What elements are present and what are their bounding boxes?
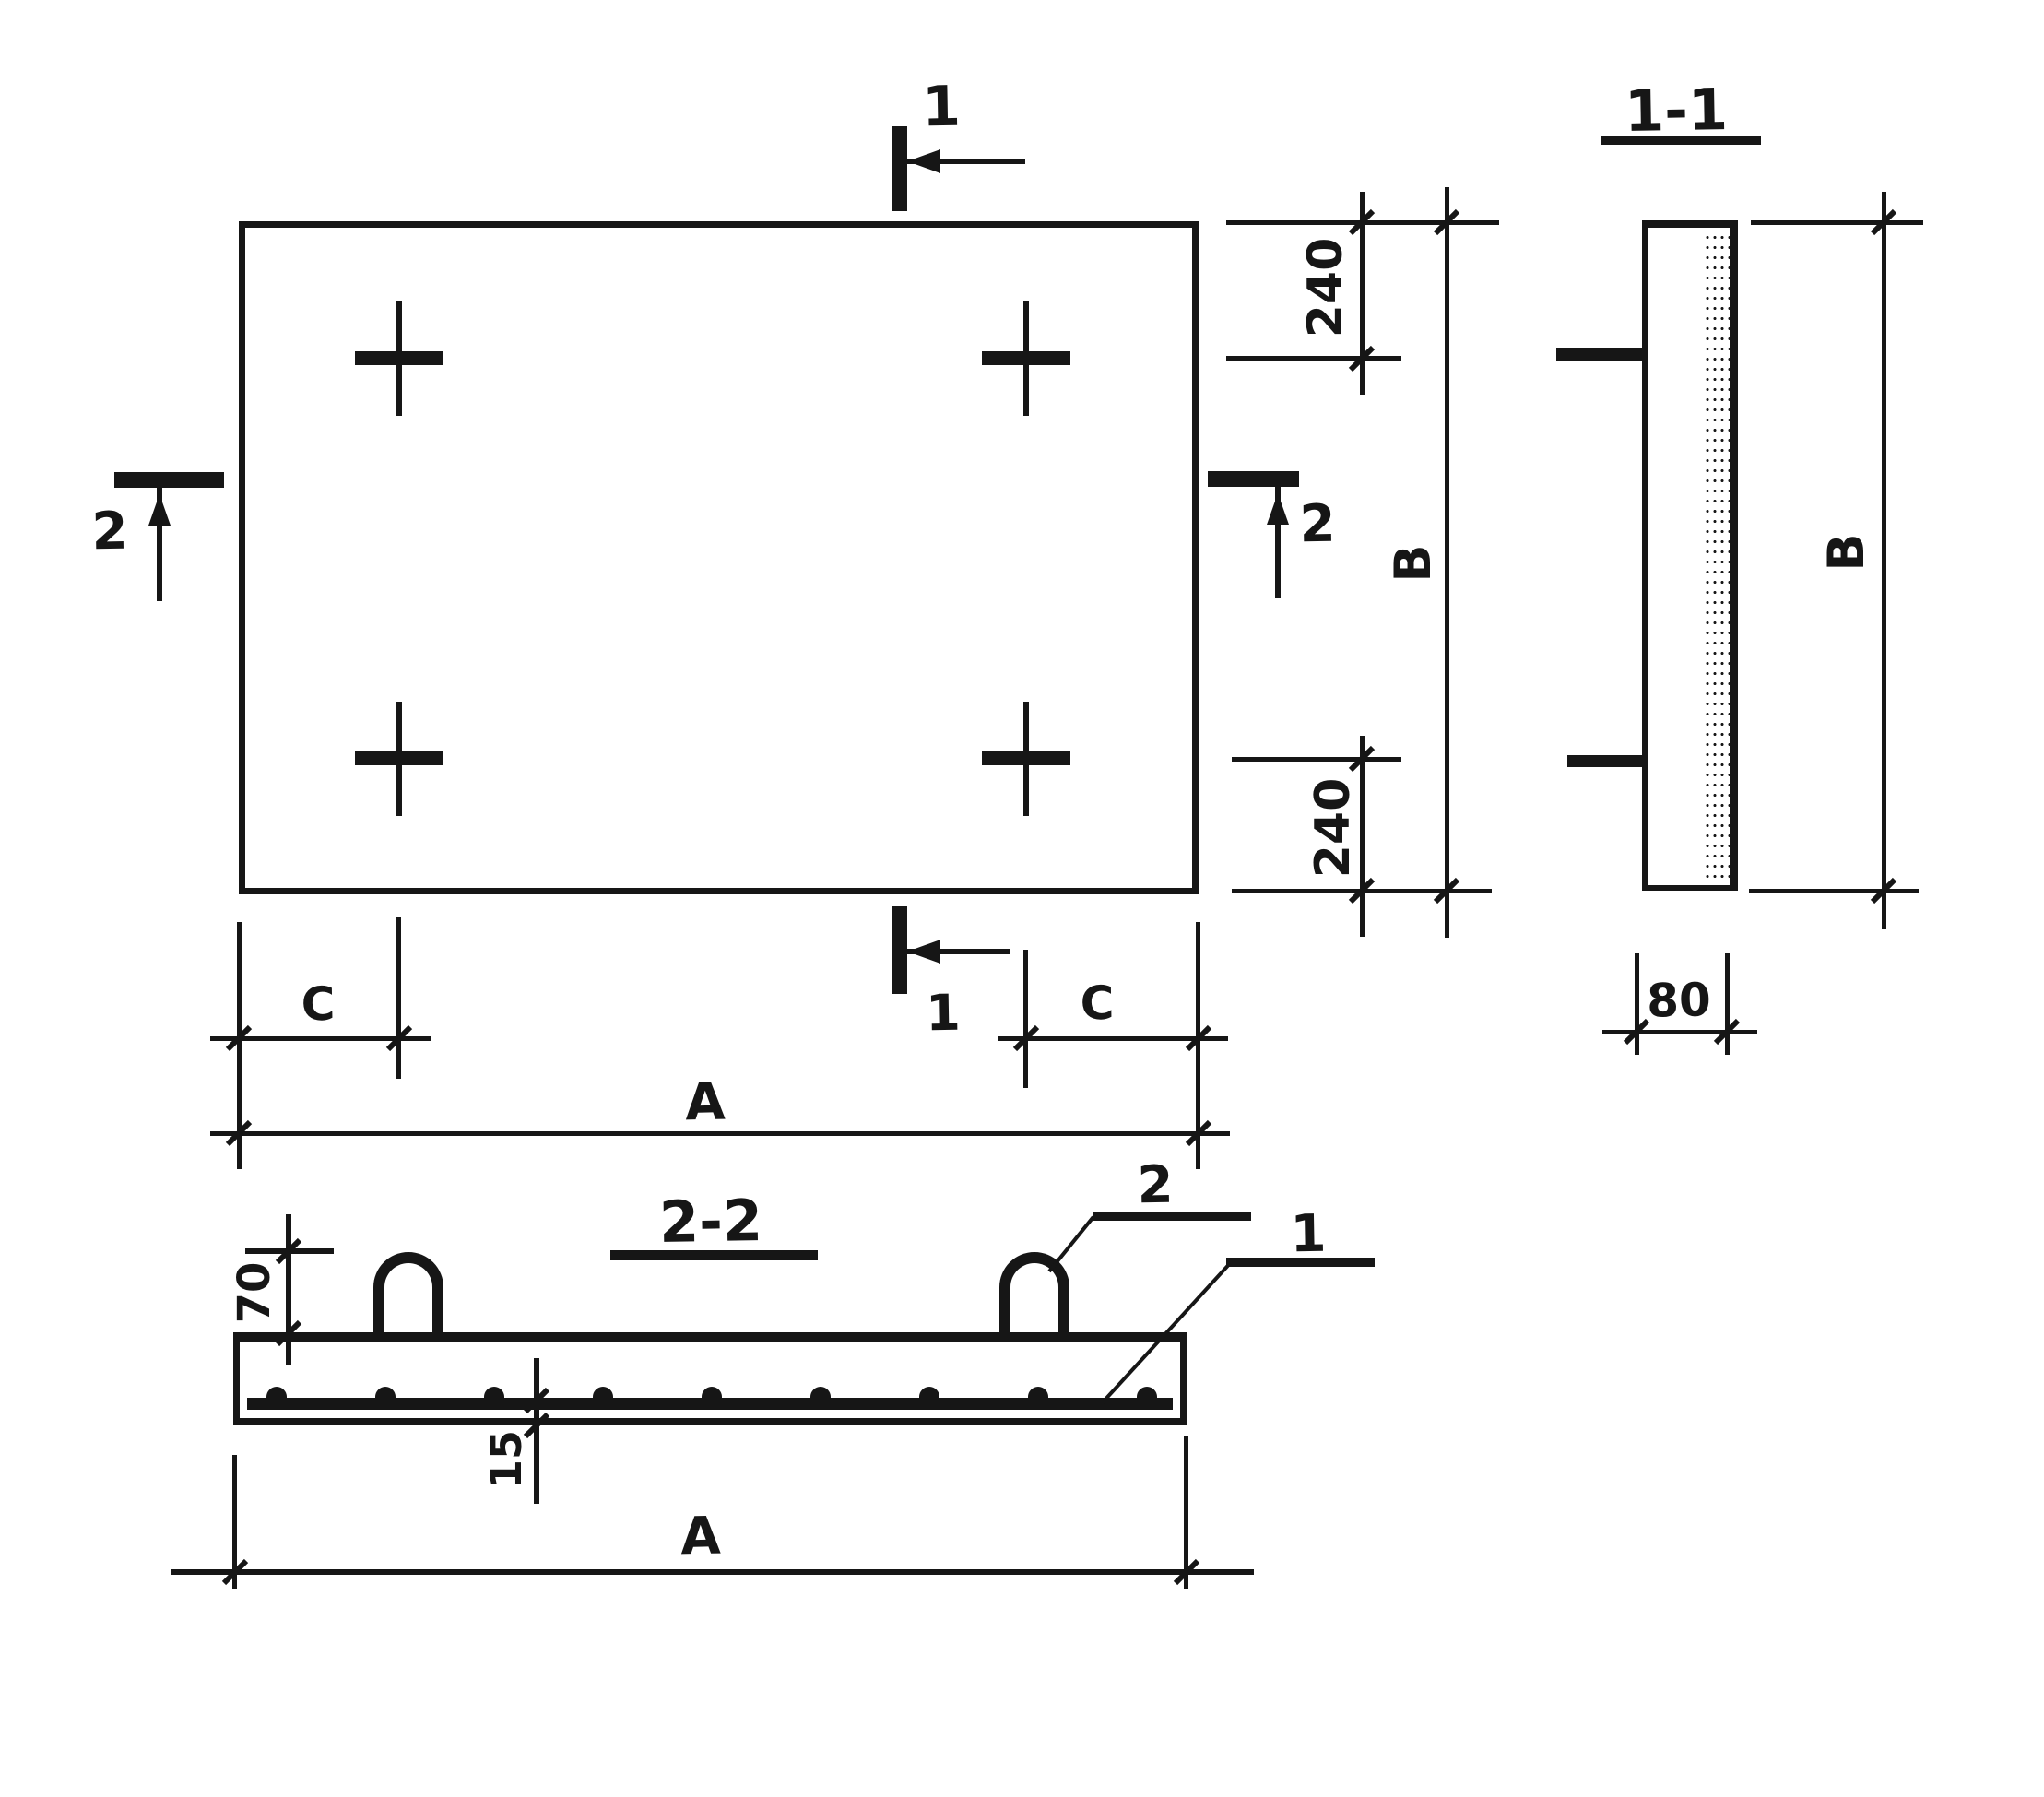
dim-70-label: 70 [232, 1262, 277, 1324]
dim-A-section-label: A [680, 1511, 721, 1564]
section-2-2-title: 2-2 [658, 1192, 762, 1251]
lifting-loop-right [999, 1252, 1069, 1333]
dim-C-left-label: C [301, 981, 336, 1028]
lifting-loop-left [373, 1252, 443, 1333]
section11-loop-tie-bottom [1567, 755, 1644, 767]
extension-line [1751, 220, 1923, 225]
dimension-line-A-plan [210, 1131, 1230, 1136]
extension-line [1749, 889, 1919, 893]
callout-mesh-underline [1226, 1258, 1375, 1267]
dim-240-bottom-label: 240 [1309, 778, 1357, 879]
dim-A-plan-label: A [685, 1077, 726, 1129]
section11-rebar-mesh [1704, 232, 1730, 880]
extension-line [396, 917, 401, 1079]
dimension-line-A-section [171, 1569, 1254, 1575]
cut1-top-arrow-icon [907, 149, 940, 173]
extension-line [1725, 953, 1730, 1055]
dimension-line-70 [286, 1214, 291, 1365]
dim-80-label: 80 [1647, 976, 1711, 1023]
cut1-top-bar [892, 126, 907, 211]
loop-mark-bar [355, 351, 443, 365]
section-1-1-title-underline [1601, 136, 1761, 145]
cut1-top-label: 1 [922, 79, 962, 136]
callout-loop-label: 2 [1137, 1160, 1174, 1212]
dimension-line-B-plan [1445, 187, 1449, 938]
plan-slab-outline [239, 221, 1199, 894]
dim-C-right-label: C [1080, 980, 1115, 1027]
dim-B-plan-label: B [1388, 544, 1438, 582]
section22-slab-outline [233, 1332, 1187, 1425]
cut2-right-label: 2 [1299, 499, 1336, 551]
cut1-bottom-arrow-icon [907, 940, 940, 964]
cut2-left-arrow-icon [148, 494, 171, 526]
callout-loop-underline [1093, 1212, 1251, 1221]
cut1-bottom-label: 1 [926, 988, 962, 1039]
cut2-right-arrow-icon [1267, 493, 1289, 525]
dim-B-section-label: B [1822, 533, 1872, 571]
loop-mark-bar [982, 351, 1070, 365]
dim-240-top-label: 240 [1302, 238, 1350, 338]
loop-mark-bar [355, 751, 443, 765]
loop-mark-bar [982, 751, 1070, 765]
cut2-left-bar [114, 472, 224, 488]
extension-line [1023, 950, 1028, 1088]
section-1-1-title: 1-1 [1624, 81, 1728, 140]
cut2-left-label: 2 [91, 506, 128, 559]
callout-loop-leader [1047, 1216, 1094, 1273]
callout-mesh-label: 1 [1290, 1209, 1327, 1261]
drawing-sheet: 1 1 2 2 240 240 B 1-1 B 80 [0, 0, 2044, 1797]
extension-line [1635, 953, 1639, 1055]
cut1-bottom-bar [892, 906, 907, 994]
extension-line [1232, 757, 1401, 762]
section-2-2-title-underline [610, 1250, 818, 1260]
extension-line [1226, 356, 1401, 361]
section11-loop-tie-top [1556, 348, 1643, 361]
dim-15-label: 15 [485, 1430, 527, 1489]
section22-rebar [247, 1398, 1173, 1410]
dimension-line-80 [1602, 1030, 1757, 1034]
cut2-right-bar [1208, 471, 1299, 487]
dimension-line-B-section [1882, 192, 1886, 929]
